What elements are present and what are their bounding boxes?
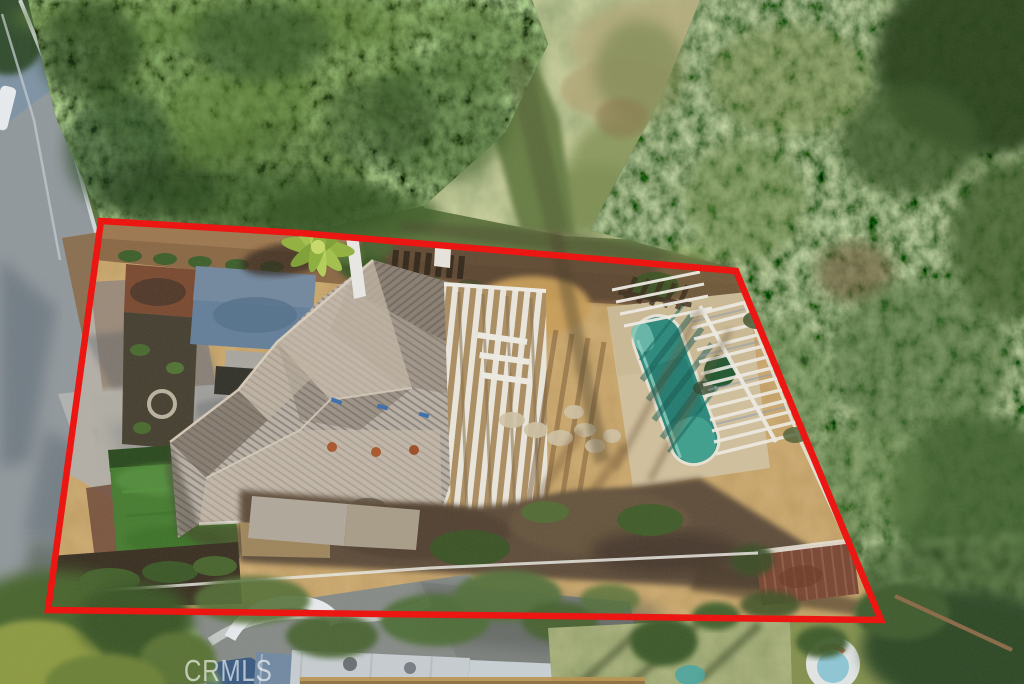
svg-text:CRMLS: CRMLS: [184, 653, 272, 684]
